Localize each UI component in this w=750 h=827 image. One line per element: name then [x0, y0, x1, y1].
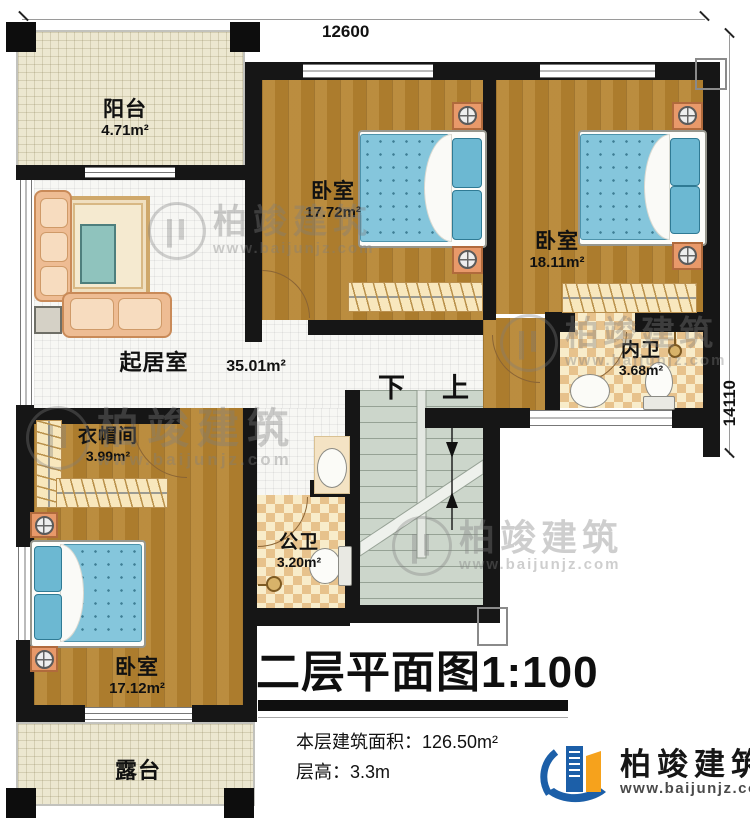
dimension-right-value: 14110 — [720, 380, 740, 426]
wall-bath-bottom — [243, 608, 350, 626]
side-table — [34, 306, 62, 334]
nightstand — [452, 246, 483, 274]
post-balcony-left — [6, 22, 36, 52]
floor-area-value: 126.50m² — [422, 732, 498, 752]
company-name: 柏竣建筑 — [620, 749, 750, 782]
sofa-cushion — [118, 298, 162, 330]
floor-height-line: 层高：3.3m — [296, 758, 390, 784]
room-name: 卧室 — [92, 656, 182, 680]
wall-bedroom-right-bottom-a — [545, 312, 575, 332]
lamp-icon — [35, 650, 54, 669]
sofa-cushion — [40, 198, 68, 228]
title-underline-thin — [258, 717, 568, 718]
sink — [317, 448, 347, 488]
shower-head-icon — [266, 576, 282, 592]
bed-pillow — [452, 138, 482, 188]
wall-right — [703, 62, 720, 457]
toilet-tank — [643, 396, 675, 410]
post-terrace-left — [6, 788, 36, 818]
room-area: 3.99m² — [66, 448, 150, 464]
company-logo-icon — [540, 742, 612, 804]
floor-area-line: 本层建筑面积：126.50m² — [296, 728, 498, 754]
room-label-balcony: 阳台 4.71m² — [85, 98, 165, 139]
room-name: 内卫 — [606, 340, 676, 362]
room-name: 卧室 — [288, 180, 378, 204]
wall-stairs-left — [345, 390, 360, 623]
nightstand — [30, 512, 58, 538]
nightstand — [30, 646, 58, 672]
wall-bedroom-top-left — [245, 62, 262, 342]
bed-pillow — [34, 594, 62, 640]
room-label-bedroom-bottom: 卧室 17.12m² — [92, 656, 182, 697]
nightstand — [672, 102, 703, 130]
room-label-closet: 衣帽间 3.99m² — [66, 426, 150, 464]
floor-area-label: 本层建筑面积： — [296, 732, 422, 752]
lamp-icon — [678, 246, 697, 265]
wall-hall-left — [243, 408, 257, 722]
room-name: 起居室 — [112, 350, 196, 375]
wall-bedroom-bottom-b — [192, 705, 257, 722]
room-name: 阳台 — [85, 98, 165, 122]
sofa-cushion — [70, 298, 114, 330]
wall-stairs-right — [483, 428, 500, 623]
window-ensuite — [530, 410, 672, 426]
bedroom-bottom-sliding-door — [85, 707, 192, 720]
company-logo: 柏竣建筑 www.baijunjz.com — [540, 742, 750, 804]
wall-bedroom-bottom-a — [16, 705, 85, 722]
post-balcony-right — [230, 22, 260, 52]
room-area-living: 35.01m² — [218, 358, 294, 376]
wardrobe — [562, 283, 697, 313]
stairs-up-label: 上 — [442, 366, 469, 405]
lamp-icon — [678, 106, 697, 125]
dimension-line-top — [22, 19, 705, 20]
bed-pillow — [670, 186, 700, 234]
room-area: 18.11m² — [512, 254, 602, 271]
room-area: 17.12m² — [92, 680, 182, 697]
post-terrace-right — [224, 788, 254, 818]
wall-bottom-right-b — [672, 408, 703, 428]
window-bedroom-top — [303, 64, 433, 78]
lamp-icon — [458, 250, 477, 269]
wardrobe — [56, 478, 168, 508]
room-area: 3.68m² — [606, 362, 676, 378]
stairs-down-label: 下 — [378, 366, 405, 405]
floor-height-value: 3.3m — [350, 762, 390, 782]
bed-pillow — [34, 546, 62, 592]
drawing-title: 二层平面图1:100 — [256, 636, 599, 700]
room-area: 35.01m² — [218, 358, 294, 376]
coffee-table — [80, 224, 116, 284]
room-area: 4.71m² — [85, 122, 165, 139]
sofa-cushion — [40, 266, 68, 296]
room-label-bath: 公卫 3.20m² — [264, 532, 334, 570]
room-label-bedroom-top: 卧室 17.72m² — [288, 180, 378, 221]
room-label-ensuite: 内卫 3.68m² — [606, 340, 676, 378]
wall-bottom-right-a — [425, 408, 530, 428]
toilet-tank — [338, 546, 352, 586]
room-area: 17.72m² — [288, 204, 378, 221]
floor-height-label: 层高： — [296, 762, 350, 782]
wardrobe — [348, 282, 483, 312]
room-name: 露台 — [105, 758, 171, 783]
sink — [570, 374, 610, 408]
column-outline-topright — [695, 58, 727, 90]
window-living-left — [20, 180, 32, 405]
room-label-living: 起居室 — [112, 350, 196, 375]
company-website: www.baijunjz.com — [620, 781, 750, 797]
nightstand — [452, 102, 483, 130]
bed-pillow — [452, 190, 482, 240]
dimension-top-value: 12600 — [322, 22, 369, 42]
room-area: 3.20m² — [264, 554, 334, 570]
sofa-cushion — [40, 232, 68, 262]
window-bedroom-right — [540, 64, 655, 78]
room-name: 衣帽间 — [66, 426, 150, 448]
nightstand — [672, 242, 703, 270]
wall-ensuite-left — [545, 332, 560, 410]
balcony-sliding-door — [85, 167, 175, 178]
bed-pillow — [670, 138, 700, 186]
room-name: 卧室 — [512, 230, 602, 254]
room-name: 公卫 — [264, 532, 334, 554]
floor-plan: 阳台 4.71m² 卧室 17.72m² 卧室 18.11m² 起居室 35.0… — [0, 0, 750, 827]
lamp-icon — [35, 516, 54, 535]
lamp-icon — [458, 106, 477, 125]
room-label-terrace: 露台 — [105, 758, 171, 783]
wall-bedroom-right-bottom-b — [635, 312, 703, 332]
title-underline-bar — [258, 700, 568, 711]
wall-bedroom-top-bottom — [308, 320, 483, 335]
room-label-bedroom-right: 卧室 18.11m² — [512, 230, 602, 271]
